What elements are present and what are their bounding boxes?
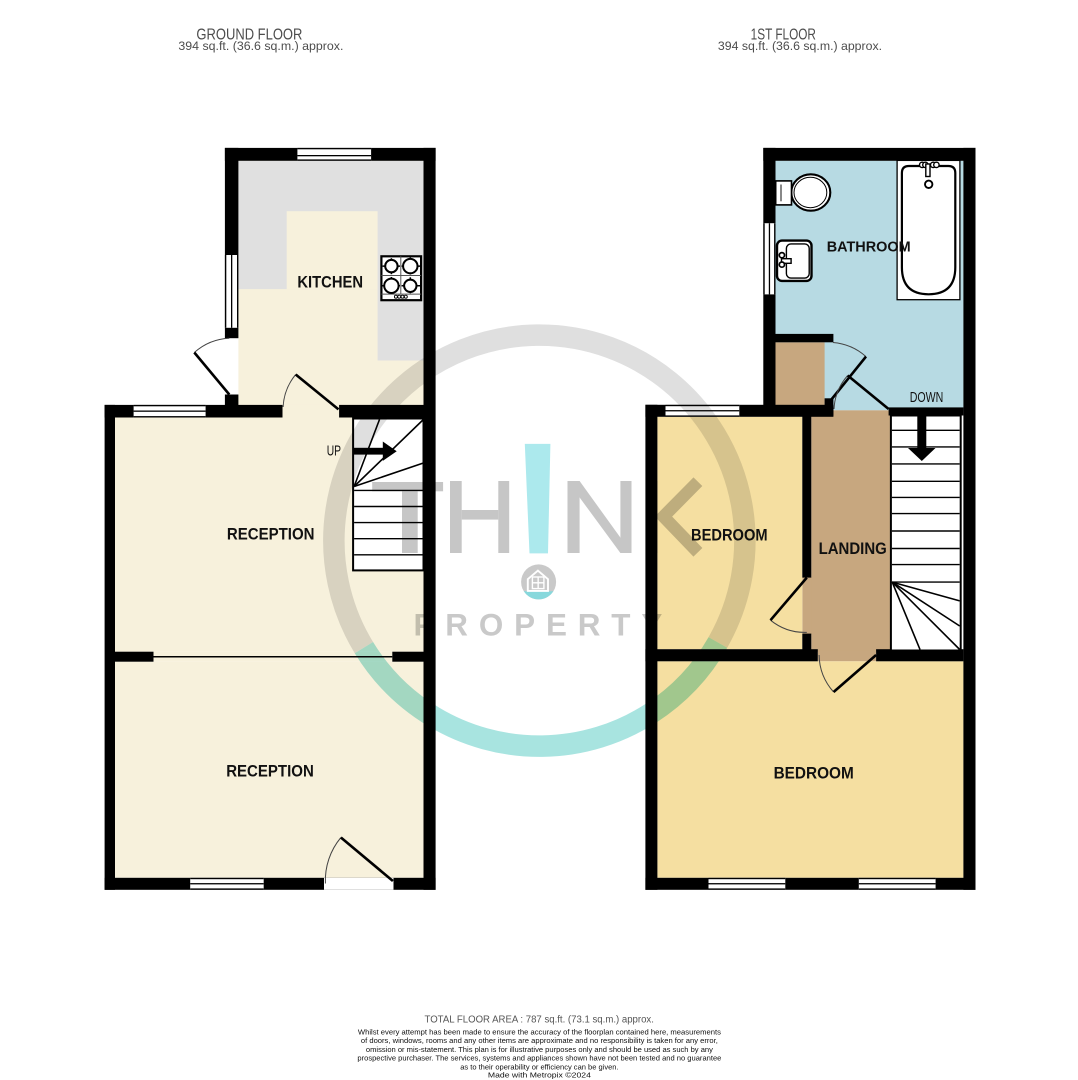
svg-text:PROPERTY: PROPERTY [414,608,663,643]
